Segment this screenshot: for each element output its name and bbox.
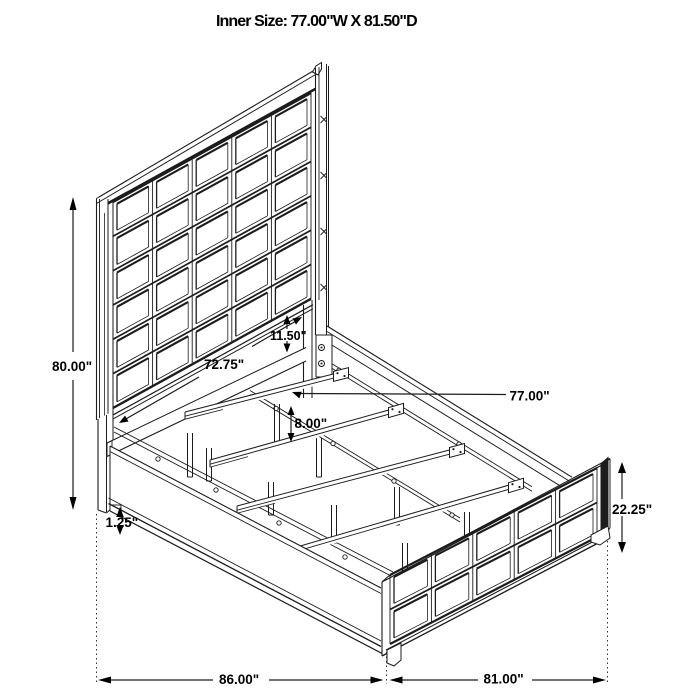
svg-text:11.50": 11.50" <box>270 329 307 343</box>
svg-text:86.00": 86.00" <box>219 672 259 687</box>
svg-text:81.00": 81.00" <box>484 672 524 687</box>
svg-text:1.25": 1.25" <box>106 515 139 530</box>
svg-text:22.25": 22.25" <box>612 502 652 517</box>
svg-text:77.00": 77.00" <box>510 389 550 404</box>
svg-text:8.00": 8.00" <box>295 416 328 431</box>
svg-text:72.75": 72.75" <box>204 357 244 372</box>
svg-text:80.00": 80.00" <box>52 359 92 374</box>
